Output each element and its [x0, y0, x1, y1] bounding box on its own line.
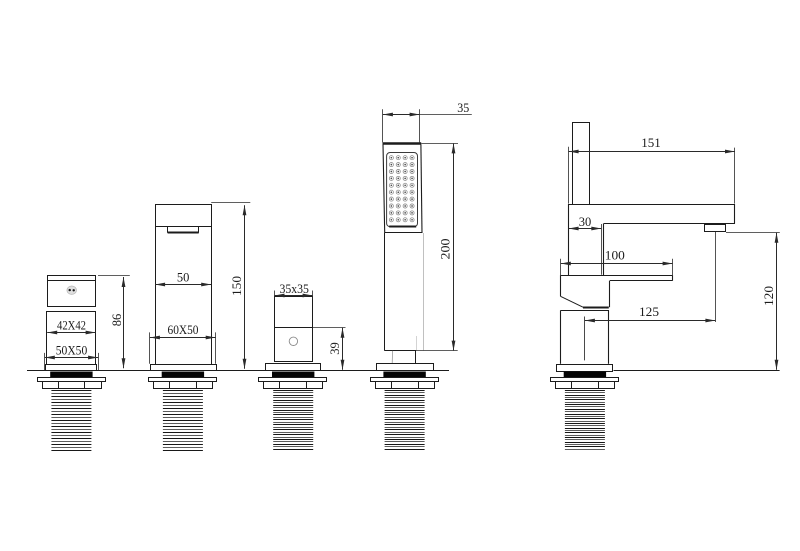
svg-text:100: 100 — [605, 248, 625, 262]
svg-text:35: 35 — [457, 101, 469, 115]
svg-text:200: 200 — [439, 239, 453, 260]
svg-text:50: 50 — [177, 271, 190, 285]
svg-text:30: 30 — [579, 215, 592, 229]
svg-text:50X50: 50X50 — [56, 343, 88, 357]
svg-text:150: 150 — [230, 276, 244, 296]
svg-text:151: 151 — [641, 136, 661, 150]
svg-text:60X50: 60X50 — [168, 323, 199, 337]
svg-text:86: 86 — [110, 314, 124, 327]
svg-text:120: 120 — [762, 286, 776, 306]
svg-text:125: 125 — [639, 305, 659, 319]
svg-text:42X42: 42X42 — [57, 319, 86, 333]
svg-text:39: 39 — [328, 342, 342, 355]
